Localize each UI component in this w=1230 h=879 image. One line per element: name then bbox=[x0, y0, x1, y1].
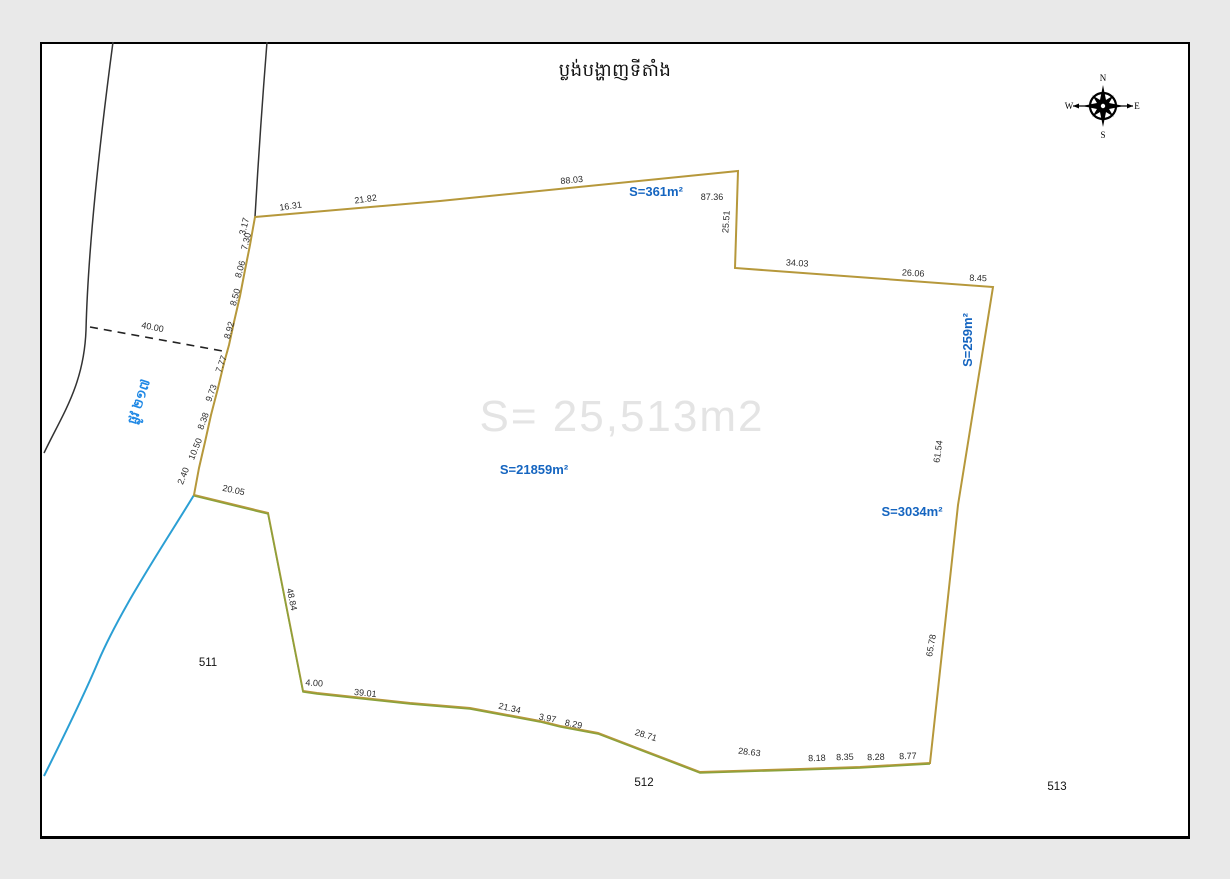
measurement-label: 26.06 bbox=[902, 267, 925, 278]
measurement-label: 16.31 bbox=[279, 200, 303, 213]
compass-label-w: W bbox=[1065, 101, 1074, 111]
area-label: S=3034m² bbox=[881, 504, 943, 519]
measurement-label: 25.51 bbox=[720, 210, 732, 233]
adjacent-parcel-boundary bbox=[194, 496, 930, 773]
measurement-label: 8.28 bbox=[867, 752, 885, 763]
compass-label-s: S bbox=[1100, 130, 1105, 140]
measurement-label: 8.77 bbox=[899, 751, 917, 762]
area-label: S=259m² bbox=[960, 312, 975, 367]
river-line bbox=[44, 495, 194, 776]
compass-label-e: E bbox=[1134, 101, 1140, 111]
measurement-label: 4.00 bbox=[305, 677, 323, 688]
measurement-label: 28.71 bbox=[634, 727, 658, 743]
road-edge-line-outer bbox=[44, 42, 113, 453]
road-width-label: 40.00 bbox=[141, 320, 165, 334]
measurement-label: 8.06 bbox=[233, 259, 247, 279]
road-edge-line-inner bbox=[255, 42, 267, 217]
parcel-number: 513 bbox=[1047, 781, 1066, 793]
measurement-label: 8.92 bbox=[222, 320, 236, 340]
measurement-label: 8.18 bbox=[808, 753, 826, 764]
parcel-number: 512 bbox=[634, 777, 653, 789]
measurement-label: 21.82 bbox=[354, 193, 378, 206]
measurement-label: 88.03 bbox=[560, 174, 583, 186]
area-label: S=361m² bbox=[629, 184, 684, 199]
area-label: S=21859m² bbox=[500, 462, 569, 477]
compass-hub bbox=[1101, 104, 1105, 108]
survey-map-screenshot: ប្លង់បង្ហាញទីតាំង S= 25,513m2 N S E W 16… bbox=[0, 0, 1230, 879]
measurement-label: 34.03 bbox=[786, 257, 809, 268]
compass-west-arrow bbox=[1073, 104, 1079, 109]
measurement-label: 20.05 bbox=[222, 483, 246, 497]
measurement-label: 28.63 bbox=[738, 746, 762, 759]
measurement-label: 87.36 bbox=[701, 192, 724, 202]
road-name-label: ផ្លូវ ២១៧ bbox=[124, 377, 155, 427]
measurement-label: 8.45 bbox=[969, 273, 987, 284]
measurement-label: 2.40 bbox=[175, 466, 191, 486]
compass-label-n: N bbox=[1100, 73, 1107, 83]
measurement-label: 8.35 bbox=[836, 752, 854, 763]
measurement-label: 65.78 bbox=[924, 634, 938, 658]
cadastral-map-canvas: N S E W 16.3121.8288.0387.3625.5134.0326… bbox=[0, 0, 1230, 879]
compass-east-arrow bbox=[1127, 104, 1133, 109]
compass-rose: N S E W bbox=[1065, 73, 1141, 140]
measurement-label: 8.50 bbox=[228, 287, 242, 307]
measurement-label: 7.77 bbox=[213, 354, 228, 374]
parcel-number: 511 bbox=[199, 657, 217, 669]
measurement-label: 61.54 bbox=[932, 440, 945, 464]
